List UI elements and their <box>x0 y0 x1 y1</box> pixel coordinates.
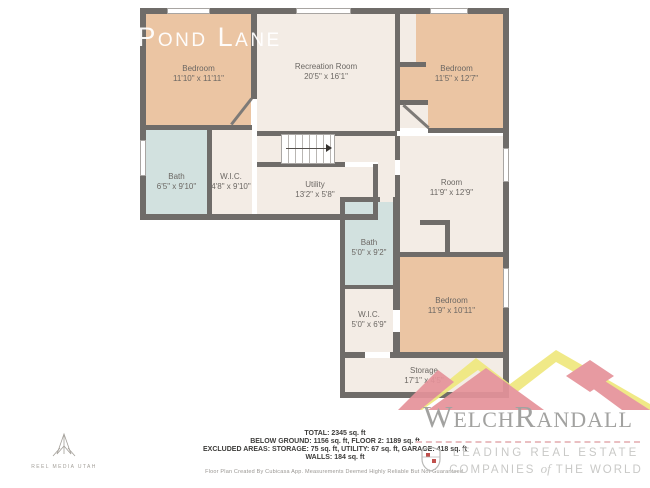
wall-segment <box>395 136 400 160</box>
tagline-of: of <box>541 461 551 476</box>
window <box>503 148 509 182</box>
room-label-room-right: Room 11'9" x 12'9" <box>400 178 503 198</box>
randall-text: Randall <box>515 399 633 434</box>
window <box>296 8 351 14</box>
tagline-line2: COMPANIES of THE WORLD <box>440 461 650 477</box>
room-label-bath-mid: Bath 5'0" x 9'2" <box>343 238 395 258</box>
tagline-companies: COMPANIES <box>449 464 535 476</box>
room-name: Utility <box>257 180 373 190</box>
room-name: Bath <box>343 238 395 248</box>
wall-segment <box>140 125 252 130</box>
address-title: ck Pond Lane <box>96 22 282 53</box>
room-name: Bedroom <box>400 296 503 306</box>
room-dims: 13'2" x 5'8" <box>257 190 373 200</box>
room-name: Room <box>400 178 503 188</box>
room-name: W.I.C. <box>343 310 395 320</box>
room-name: Bedroom <box>146 64 251 74</box>
wall-segment <box>395 67 400 131</box>
logo-dashed-divider <box>416 441 640 443</box>
wall-segment <box>503 8 509 398</box>
window <box>140 140 146 176</box>
floor-bedroom-tr-entry-notch <box>400 14 416 62</box>
reel-media-icon <box>49 430 79 458</box>
room-label-bath-left: Bath 6'5" x 9'10" <box>146 172 207 192</box>
window <box>430 8 468 14</box>
window <box>167 8 210 14</box>
reel-media-utah-logo: REEL MEDIA UTAH <box>28 430 100 470</box>
room-label-recreation: Recreation Room 20'5" x 16'1" <box>257 62 395 82</box>
room-name: W.I.C. <box>206 172 256 182</box>
room-dims: 11'9" x 12'9" <box>400 188 503 198</box>
room-name: Recreation Room <box>257 62 395 72</box>
tagline-world: THE WORLD <box>556 464 643 476</box>
room-name: Bedroom <box>410 64 503 74</box>
room-dims: 5'0" x 6'9" <box>343 320 395 330</box>
room-dims: 4'8" x 9'10" <box>206 182 256 192</box>
room-dims: 11'9" x 10'11" <box>400 306 503 316</box>
wall-segment <box>428 128 503 133</box>
stairs-arrow-head-icon <box>326 144 332 152</box>
room-label-wic-left: W.I.C. 4'8" x 9'10" <box>206 172 256 192</box>
tagline-line1: LEADING REAL ESTATE <box>440 447 650 459</box>
wall-segment <box>395 14 400 62</box>
wall-segment <box>373 164 378 220</box>
wall-segment <box>345 285 393 289</box>
welch-randall-wordmark: WelchRandall <box>404 400 650 434</box>
room-name: Bath <box>146 172 207 182</box>
room-label-bedroom-tl: Bedroom 11'10" x 11'11" <box>146 64 251 84</box>
room-dims: 20'5" x 16'1" <box>257 72 395 82</box>
room-dims: 6'5" x 9'10" <box>146 182 207 192</box>
floor-plan-image: Bedroom 11'10" x 11'11" Recreation Room … <box>0 0 650 488</box>
room-label-bedroom-tr: Bedroom 11'5" x 12'7" <box>410 64 503 84</box>
leading-re-crest-icon <box>420 446 442 472</box>
stairs-direction-arrow <box>286 148 326 149</box>
room-dims: 11'10" x 11'11" <box>146 74 251 84</box>
welch-text: Welch <box>423 399 515 434</box>
room-label-wic-mid: W.I.C. 5'0" x 6'9" <box>343 310 395 330</box>
room-label-utility: Utility 13'2" x 5'8" <box>257 180 373 200</box>
reel-media-label: REEL MEDIA UTAH <box>28 464 100 470</box>
wall-segment <box>445 220 450 257</box>
wall-segment <box>395 100 428 105</box>
wall-segment <box>340 352 365 358</box>
room-label-bedroom-bottom: Bedroom 11'9" x 10'11" <box>400 296 503 316</box>
window <box>503 268 509 308</box>
room-dims: 11'5" x 12'7" <box>410 74 503 84</box>
room-dims: 5'0" x 9'2" <box>343 248 395 258</box>
